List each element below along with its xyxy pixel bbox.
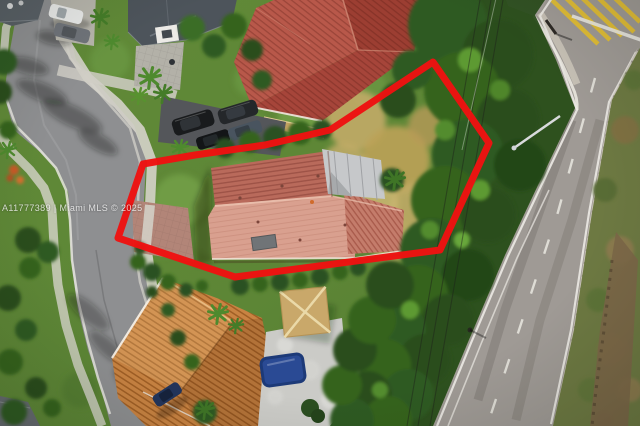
entry-portico (155, 25, 179, 44)
aerial-scene (0, 0, 640, 426)
roof-panel (251, 234, 277, 250)
aerial-property-photo: A11777389 | Miami MLS © 2025 (0, 0, 640, 426)
covered-pool (260, 353, 305, 387)
rooftop-ac-unit (7, 3, 13, 9)
